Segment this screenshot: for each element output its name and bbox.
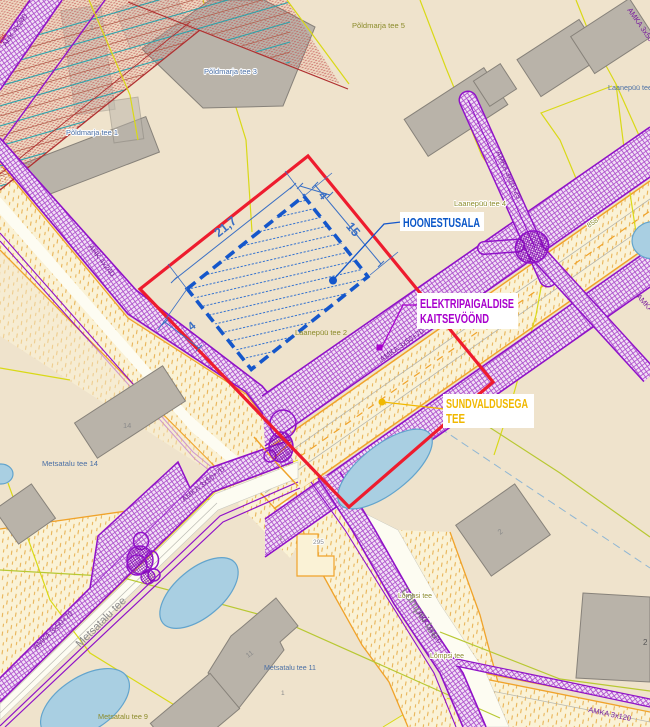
svg-text:Põldmarja tee 1: Põldmarja tee 1	[66, 128, 118, 137]
svg-text:1: 1	[279, 535, 283, 542]
svg-text:1: 1	[90, 25, 94, 32]
svg-text:Põldmarja tee 5: Põldmarja tee 5	[352, 21, 405, 30]
svg-text:Lõmpsi tee: Lõmpsi tee	[430, 653, 464, 660]
svg-text:Metsatalu tee 9: Metsatalu tee 9	[98, 712, 148, 721]
svg-text:HOONESTUSALA: HOONESTUSALA	[403, 215, 480, 230]
svg-text:1: 1	[281, 690, 285, 697]
svg-text:KAITSEVÖÖND: KAITSEVÖÖND	[420, 311, 489, 326]
svg-text:2: 2	[643, 638, 648, 647]
svg-text:Laanepüü tee 2: Laanepüü tee 2	[295, 328, 347, 337]
svg-text:Metsatalu tee 14: Metsatalu tee 14	[42, 459, 98, 468]
svg-text:14: 14	[123, 421, 131, 430]
svg-text:Laanepüü tee: Laanepüü tee	[608, 83, 650, 92]
svg-text:Põldmarja tee 3: Põldmarja tee 3	[204, 67, 257, 76]
svg-text:SUNDVALDUSEGA: SUNDVALDUSEGA	[446, 397, 528, 411]
svg-text:ELEKTRIPAIGALDISE: ELEKTRIPAIGALDISE	[420, 297, 514, 311]
svg-text:295: 295	[313, 539, 324, 546]
svg-text:TEE: TEE	[446, 412, 465, 426]
svg-text:Metsatalu tee 11: Metsatalu tee 11	[264, 663, 316, 672]
svg-text:Laanepüü tee 4: Laanepüü tee 4	[454, 199, 506, 208]
svg-text:1: 1	[210, 17, 214, 24]
